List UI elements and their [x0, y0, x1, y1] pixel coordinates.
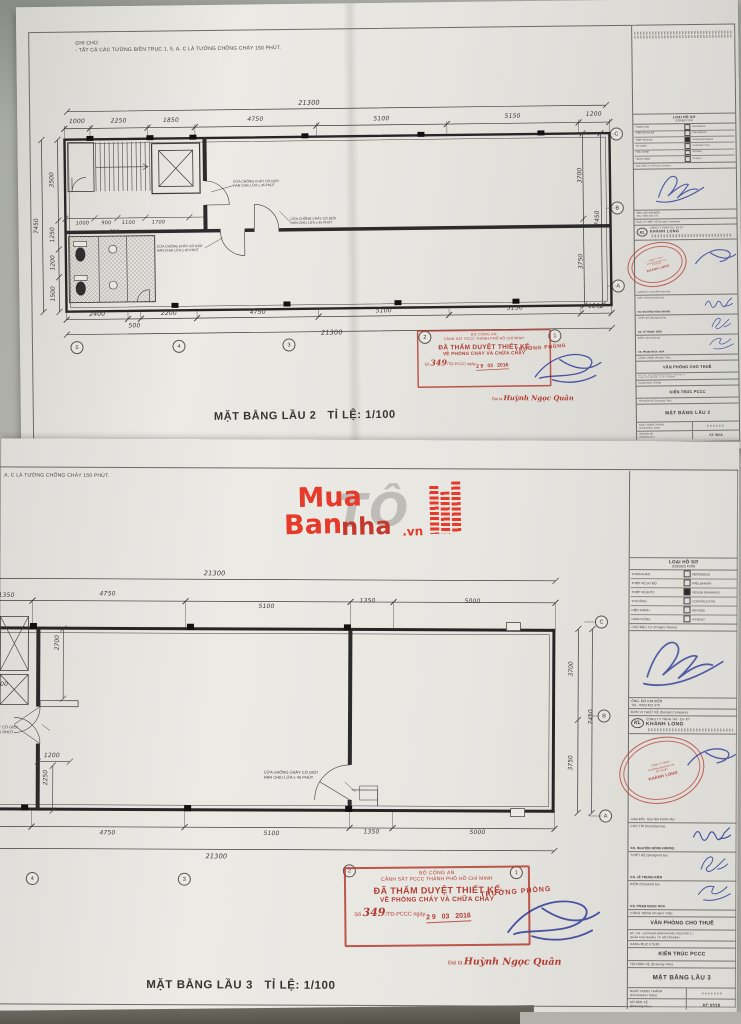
dim-label: 4750 — [99, 829, 115, 836]
dim-label: 5100 — [263, 830, 279, 837]
company-stamp-area: CÔNG TY TNHHTHƯƠNG MẠI DỊCH VỤKỸ THUẬTKH… — [629, 733, 737, 822]
pccc-approval-stamp-floor3: BỘ CÔNG AN CẢNH SÁT PCCC THÀNH PHỐ HỒ CH… — [342, 866, 528, 947]
checkbox-icon — [683, 579, 690, 586]
dim-label: 3750 — [567, 755, 574, 770]
dim-label: 1350 — [359, 597, 375, 604]
owner-signature — [629, 630, 737, 697]
building-icon — [429, 486, 439, 534]
building-icon — [451, 481, 461, 533]
signature-icon — [685, 744, 737, 774]
grid-bubble-row: A — [599, 810, 612, 823]
checkbox-checked-icon — [683, 588, 690, 595]
dim-label: 2250 — [42, 770, 49, 785]
grid-bubble-col: 4 — [26, 872, 39, 885]
fire-door-note: CỬA CHỐNG CHÁY CÓ GIỚIHẠN CHỊU LỬA ≥ 45 … — [264, 770, 318, 781]
fire-door-note-cut: CỬA CHỐNG CHÁY CÓ GIỚIHẠN CHỊU LỬA ≥ 45 … — [0, 724, 18, 735]
title-block-floor3: LOẠI HỒ SƠ(ISSUED FOR) THAM KHẢOREFERENC… — [627, 471, 738, 1009]
dim-total-bottom: 21300 — [206, 852, 228, 860]
grid-bubble-row: B — [598, 709, 611, 722]
dim-label: 1200 — [44, 752, 60, 759]
building-icon — [440, 492, 450, 534]
columns-floor3 — [21, 623, 353, 812]
muabannha-watermark: TÔ Mua Ban nha .vn — [283, 479, 485, 555]
dim-label: 5000 — [464, 598, 480, 605]
grid-bubble-row: C — [595, 615, 608, 628]
general-note-cut: A, C LÀ TƯỜNG CHỐNG CHÁY 150 PHÚT. — [4, 472, 109, 478]
signature-icon — [690, 882, 734, 901]
watermark-word: nha — [341, 512, 392, 541]
signature-icon — [635, 632, 731, 692]
checkbox-icon — [683, 615, 690, 622]
issued-for-table: THAM KHẢOREFERENCE THIẾT KẾ SƠ BỘPRELIMI… — [629, 569, 737, 623]
dim-total-right: 7450 — [588, 709, 595, 724]
dim-label: 1350 — [363, 828, 379, 835]
stamp-signer: Đại tá Huỳnh Ngọc Quân — [448, 956, 561, 967]
watermark-word: .vn — [402, 524, 423, 538]
company-logo: KL — [631, 718, 644, 728]
signature-icon — [502, 893, 602, 951]
sheet-floor3: A, C LÀ TƯỜNG CHỐNG CHÁY 150 PHÚT. TÔ Mu… — [0, 438, 739, 1013]
dim-label: 3700 — [568, 661, 575, 676]
floor-plan-3-drawing — [0, 558, 631, 881]
table-edge-light — [520, 1012, 741, 1024]
dim-total-top: 21300 — [204, 569, 226, 577]
dim-label-cut: 00 — [0, 681, 8, 688]
checkbox-icon — [683, 606, 690, 613]
checkbox-icon — [684, 570, 691, 577]
dim-label: 5000 — [469, 829, 485, 836]
grid-bubble-col: 3 — [178, 873, 191, 886]
dim-label: 4750 — [100, 590, 116, 597]
checkbox-icon — [683, 597, 690, 604]
dim-label: 2700 — [54, 635, 61, 650]
signature-icon — [692, 853, 734, 874]
signature-icon — [688, 824, 734, 843]
dim-label: 1350 — [0, 592, 15, 599]
dim-label: 5100 — [258, 603, 274, 610]
scanned-floorplan-photo: GHI CHÚ: - TẤT CẢ CÁC TƯỜNG BIÊN TRỤC 1,… — [0, 0, 741, 1024]
caption-floor3: MẶT BẰNG LẦU 3 TỈ LỆ: 1/100 — [146, 979, 335, 992]
watermark-word: Ban — [284, 509, 343, 541]
